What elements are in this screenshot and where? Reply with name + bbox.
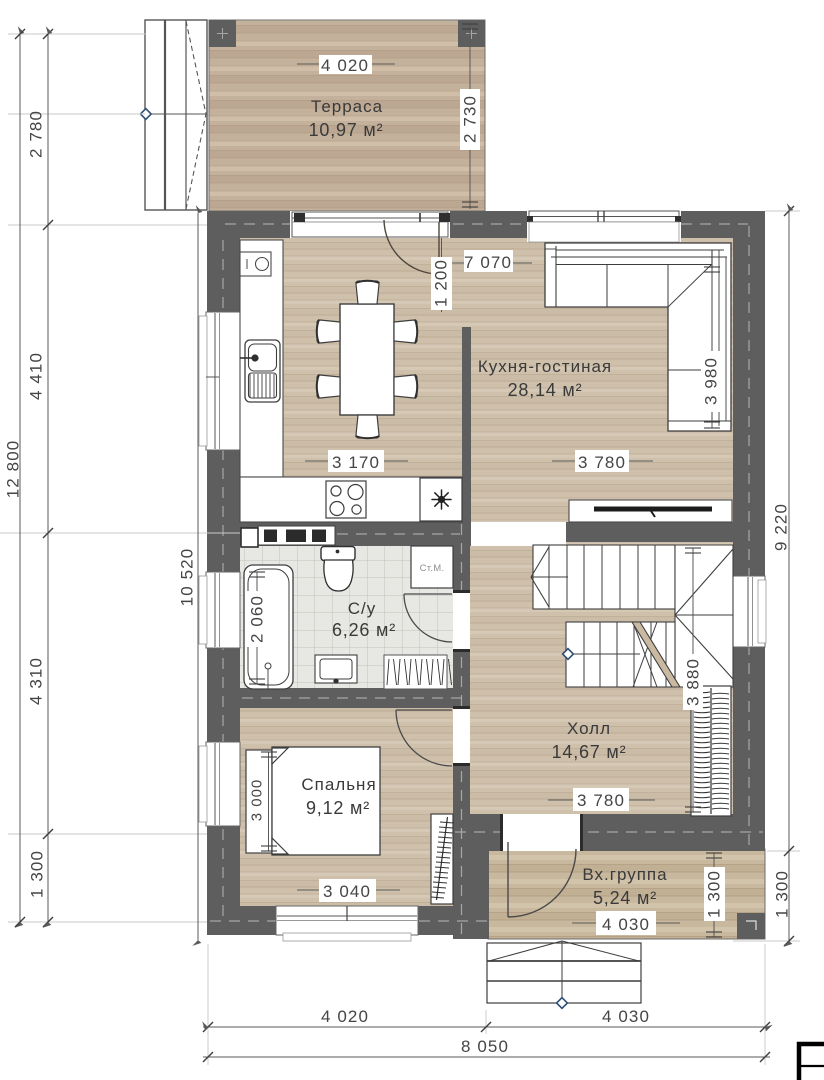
svg-text:8 050: 8 050 xyxy=(461,1037,509,1056)
svg-text:3 000: 3 000 xyxy=(249,779,266,822)
svg-text:7 070: 7 070 xyxy=(464,253,512,272)
svg-text:С/у: С/у xyxy=(348,599,377,618)
svg-text:Кухня-гостиная: Кухня-гостиная xyxy=(478,357,612,376)
svg-text:10 520: 10 520 xyxy=(178,548,197,607)
svg-text:2 060: 2 060 xyxy=(248,595,267,643)
svg-text:4 030: 4 030 xyxy=(602,915,650,934)
svg-text:3 040: 3 040 xyxy=(323,882,371,901)
svg-text:1 200: 1 200 xyxy=(432,259,451,307)
svg-text:Вх.группа: Вх.группа xyxy=(582,865,667,884)
svg-text:9 220: 9 220 xyxy=(772,503,791,551)
svg-text:Холл: Холл xyxy=(567,719,611,738)
svg-text:4 020: 4 020 xyxy=(321,56,369,75)
svg-text:9,12 м²: 9,12 м² xyxy=(306,798,370,818)
svg-text:Ст.М.: Ст.М. xyxy=(420,563,445,574)
svg-text:4 030: 4 030 xyxy=(602,1007,650,1026)
svg-text:1 300: 1 300 xyxy=(773,870,792,918)
svg-text:3 170: 3 170 xyxy=(332,453,380,472)
svg-text:Терраса: Терраса xyxy=(311,97,383,116)
svg-text:Спальня: Спальня xyxy=(301,775,376,794)
svg-text:3 780: 3 780 xyxy=(577,791,625,810)
svg-text:14,67 м²: 14,67 м² xyxy=(552,742,627,762)
svg-text:5,24 м²: 5,24 м² xyxy=(593,888,657,908)
svg-text:3 880: 3 880 xyxy=(684,658,703,706)
svg-text:2 730: 2 730 xyxy=(461,95,480,143)
svg-text:4 310: 4 310 xyxy=(27,657,46,705)
svg-text:4 410: 4 410 xyxy=(27,352,46,400)
svg-text:10,97 м²: 10,97 м² xyxy=(309,120,384,140)
svg-text:1 300: 1 300 xyxy=(28,850,47,898)
svg-text:28,14 м²: 28,14 м² xyxy=(508,380,583,400)
svg-text:3 980: 3 980 xyxy=(702,357,721,405)
svg-text:12 800: 12 800 xyxy=(4,440,23,499)
svg-text:4 020: 4 020 xyxy=(321,1007,369,1026)
svg-text:3 780: 3 780 xyxy=(578,453,626,472)
svg-text:1 300: 1 300 xyxy=(705,870,724,918)
svg-text:2 780: 2 780 xyxy=(27,110,46,158)
svg-text:6,26 м²: 6,26 м² xyxy=(332,620,396,640)
